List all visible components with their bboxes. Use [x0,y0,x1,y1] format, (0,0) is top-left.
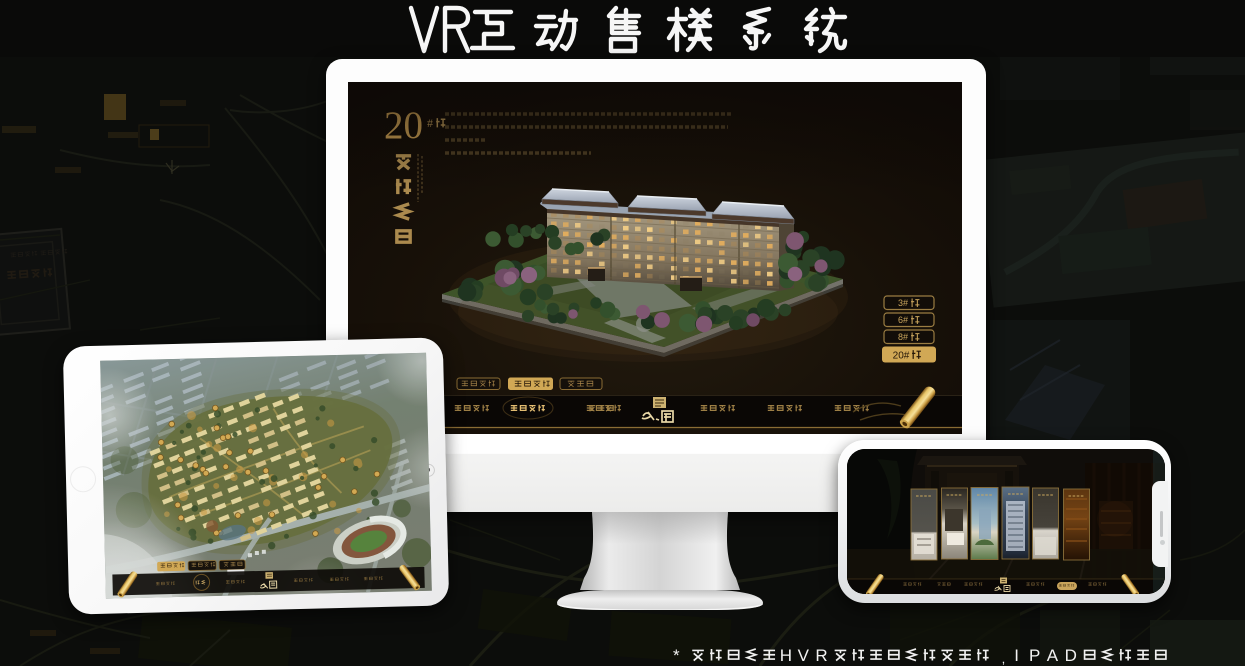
svg-text:V: V [798,646,810,665]
svg-text:3#: 3# [898,298,908,308]
svg-text:‚: ‚ [1002,651,1005,666]
svg-text:A: A [1047,646,1059,665]
svg-text:R: R [815,646,827,665]
svg-text:I: I [1014,646,1019,665]
svg-text:D: D [1065,646,1077,665]
svg-text:6#: 6# [898,315,908,325]
svg-text:P: P [1029,646,1040,665]
svg-text:8#: 8# [898,332,908,342]
svg-text:*: * [673,646,680,665]
svg-text:H: H [780,646,792,665]
svg-text:20#: 20# [893,351,910,362]
